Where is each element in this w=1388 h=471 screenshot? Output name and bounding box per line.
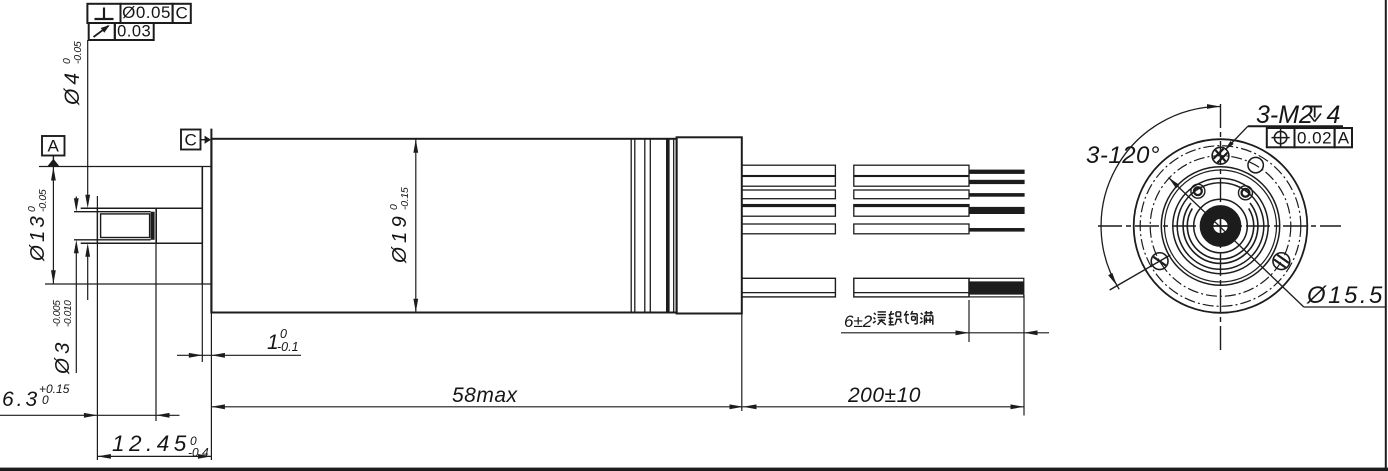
svg-text:3-120°: 3-120° [1086,142,1160,169]
svg-text:Ø13: Ø13 [26,213,49,262]
svg-text:A: A [48,137,60,156]
svg-text:58max: 58max [452,384,519,407]
svg-text:Ø15.5: Ø15.5 [1306,282,1385,309]
svg-text:-0.05: -0.05 [72,41,84,64]
svg-text:-0.005: -0.005 [52,300,63,327]
svg-text:C: C [185,130,197,149]
svg-text:Ø4: Ø4 [61,69,84,106]
svg-text:3-M2: 3-M2 [1256,101,1313,129]
svg-text:-0.010: -0.010 [63,300,74,327]
svg-text:-0.05: -0.05 [37,189,49,212]
svg-text:Ø3: Ø3 [51,339,74,375]
svg-text:Ø19: Ø19 [388,212,411,264]
svg-text:0: 0 [280,327,287,341]
svg-text:4: 4 [1327,101,1341,129]
svg-text:-0.1: -0.1 [277,340,299,354]
svg-text:200±10: 200±10 [847,384,921,407]
svg-text:C: C [176,4,188,23]
svg-text:6.3: 6.3 [2,388,40,411]
svg-text:-0.4: -0.4 [188,446,209,460]
svg-text:6±2: 6±2 [844,312,873,331]
svg-text:0: 0 [42,393,49,407]
svg-text:12.45: 12.45 [112,431,191,456]
svg-text:Ø0.05: Ø0.05 [122,3,171,22]
svg-text:0.02: 0.02 [1297,129,1332,148]
svg-text:A: A [1338,129,1350,148]
svg-text:0.03: 0.03 [117,23,151,41]
svg-text:-0.15: -0.15 [399,187,411,210]
